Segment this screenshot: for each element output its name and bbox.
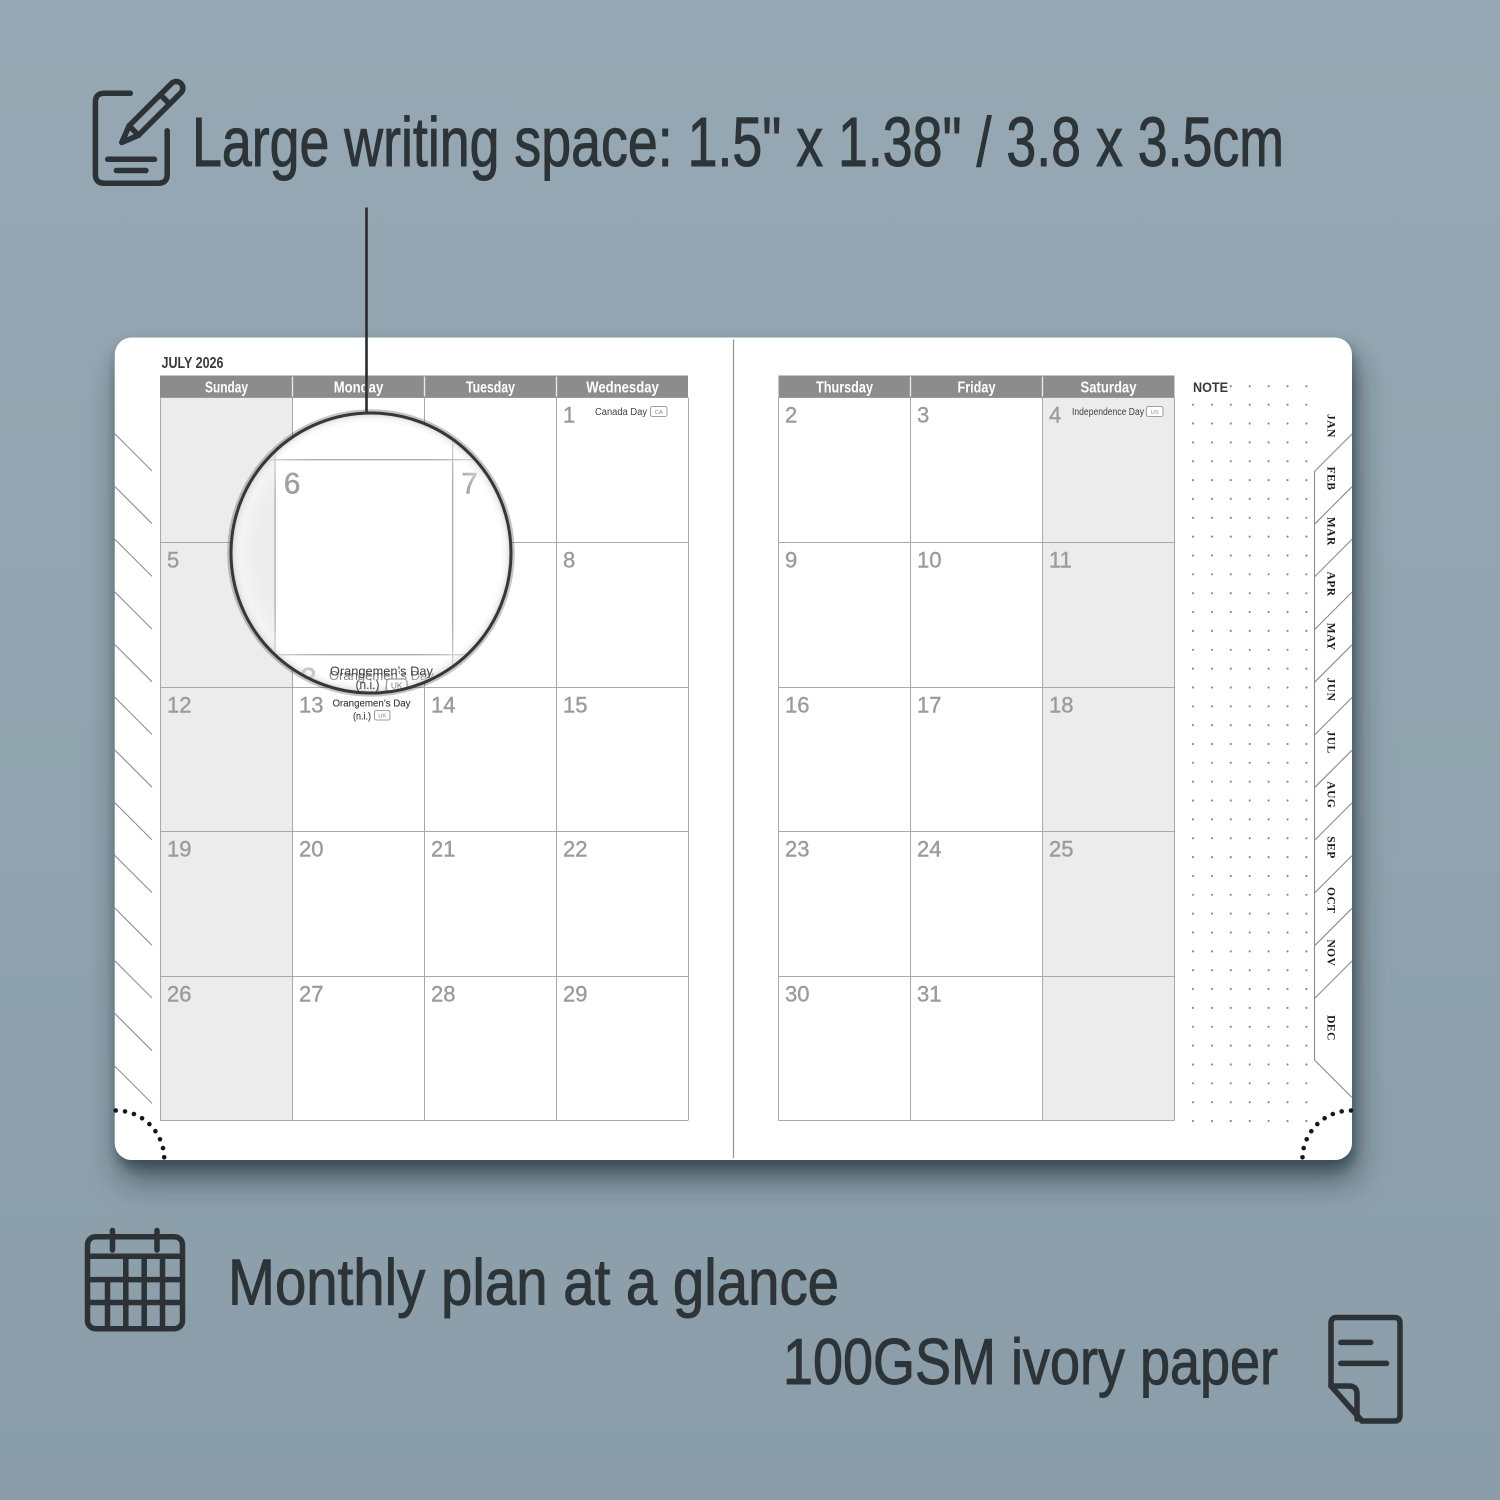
svg-text:SEP: SEP (1324, 836, 1336, 859)
svg-text:JAN: JAN (1324, 414, 1336, 438)
svg-text:MAR: MAR (1324, 517, 1336, 546)
svg-text:NOV: NOV (1324, 939, 1336, 966)
svg-text:AUG: AUG (1324, 781, 1336, 808)
svg-text:28: 28 (431, 982, 455, 1007)
svg-text:Thursday: Thursday (816, 379, 873, 396)
svg-text:MAY: MAY (1324, 623, 1336, 651)
svg-text:2: 2 (785, 403, 797, 428)
svg-text:US: US (1151, 410, 1159, 416)
svg-text:4: 4 (1049, 403, 1061, 428)
svg-text:CA: CA (655, 410, 663, 416)
svg-text:22: 22 (563, 837, 587, 862)
svg-text:Friday: Friday (958, 379, 996, 396)
svg-text:20: 20 (299, 837, 323, 862)
svg-text:30: 30 (785, 982, 809, 1007)
svg-text:Saturday: Saturday (1081, 379, 1137, 396)
svg-text:Wednesday: Wednesday (586, 379, 659, 396)
svg-text:26: 26 (167, 982, 191, 1007)
svg-text:JUN: JUN (1324, 677, 1336, 701)
svg-text:21: 21 (431, 837, 455, 862)
svg-text:APR: APR (1324, 571, 1336, 596)
svg-text:27: 27 (299, 982, 323, 1007)
svg-text:UK: UK (378, 713, 386, 719)
svg-text:Independence Day: Independence Day (1072, 407, 1144, 418)
svg-text:15: 15 (563, 693, 587, 718)
svg-text:18: 18 (1049, 693, 1073, 718)
svg-text:1: 1 (563, 403, 575, 428)
svg-text:11: 11 (1049, 548, 1072, 573)
svg-text:NOTE: NOTE (1193, 379, 1228, 395)
svg-text:JULY 2026: JULY 2026 (162, 355, 224, 372)
svg-text:100GSM ivory paper: 100GSM ivory paper (783, 1325, 1278, 1398)
svg-text:Orangemen’s Day: Orangemen’s Day (330, 664, 433, 679)
svg-text:25: 25 (1049, 837, 1073, 862)
svg-text:12: 12 (167, 693, 191, 718)
svg-text:DEC: DEC (1324, 1015, 1336, 1041)
svg-text:(n.i.): (n.i.) (353, 712, 371, 723)
svg-text:(n.i.): (n.i.) (356, 677, 380, 692)
svg-text:Monthly plan at a glance: Monthly plan at a glance (228, 1246, 839, 1319)
svg-text:29: 29 (563, 982, 587, 1007)
svg-text:Canada Day: Canada Day (595, 407, 647, 418)
svg-text:19: 19 (167, 837, 191, 862)
svg-text:8: 8 (563, 548, 575, 573)
svg-text:Monday: Monday (334, 379, 384, 396)
svg-text:OCT: OCT (1324, 887, 1336, 913)
svg-text:14: 14 (431, 693, 455, 718)
svg-text:31: 31 (917, 982, 941, 1007)
svg-text:24: 24 (917, 837, 941, 862)
svg-text:10: 10 (917, 548, 941, 573)
svg-text:Sunday: Sunday (205, 379, 248, 396)
svg-text:3: 3 (917, 403, 929, 428)
svg-text:5: 5 (167, 548, 179, 573)
svg-text:13: 13 (299, 693, 323, 718)
svg-text:JUL: JUL (1324, 730, 1336, 753)
svg-text:9: 9 (785, 548, 797, 573)
svg-text:16: 16 (785, 693, 809, 718)
svg-text:Large writing space: 1.5" x 1.: Large writing space: 1.5" x 1.38" / 3.8 … (192, 103, 1284, 181)
svg-text:FEB: FEB (1324, 467, 1336, 491)
svg-text:17: 17 (917, 693, 941, 718)
svg-text:Orangemen’s Day: Orangemen’s Day (333, 699, 411, 710)
svg-text:Tuesday: Tuesday (466, 379, 515, 396)
svg-text:23: 23 (785, 837, 809, 862)
